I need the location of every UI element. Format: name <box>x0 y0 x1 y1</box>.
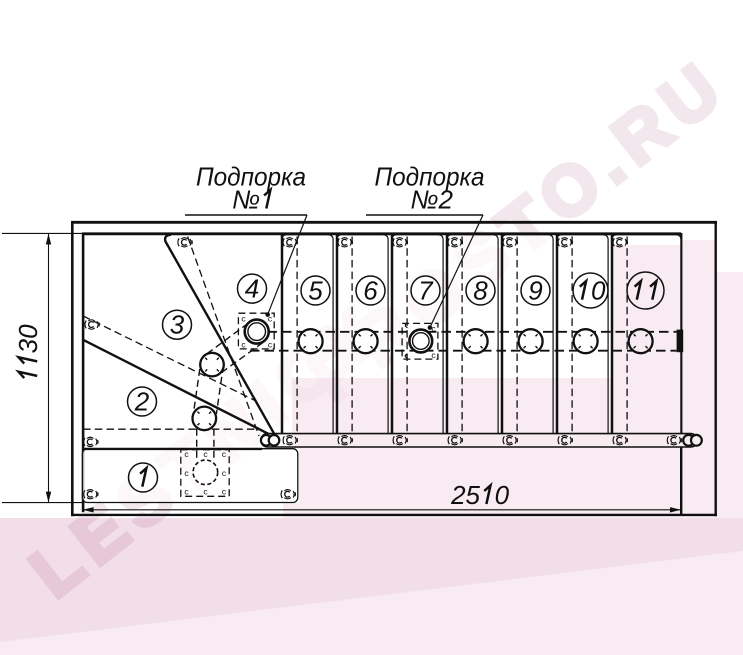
svg-text:30: 30 <box>13 324 43 353</box>
svg-text:№2: №2 <box>410 185 453 215</box>
svg-text:8: 8 <box>473 275 488 305</box>
svg-text:0: 0 <box>591 276 606 306</box>
svg-text:7: 7 <box>418 275 434 305</box>
svg-text:№: № <box>232 185 260 215</box>
svg-text:9: 9 <box>528 275 542 305</box>
svg-text:4: 4 <box>245 274 259 304</box>
svg-text:2: 2 <box>134 386 150 416</box>
svg-text:5: 5 <box>308 275 323 305</box>
svg-text:3: 3 <box>170 310 185 340</box>
svg-text:6: 6 <box>363 275 378 305</box>
